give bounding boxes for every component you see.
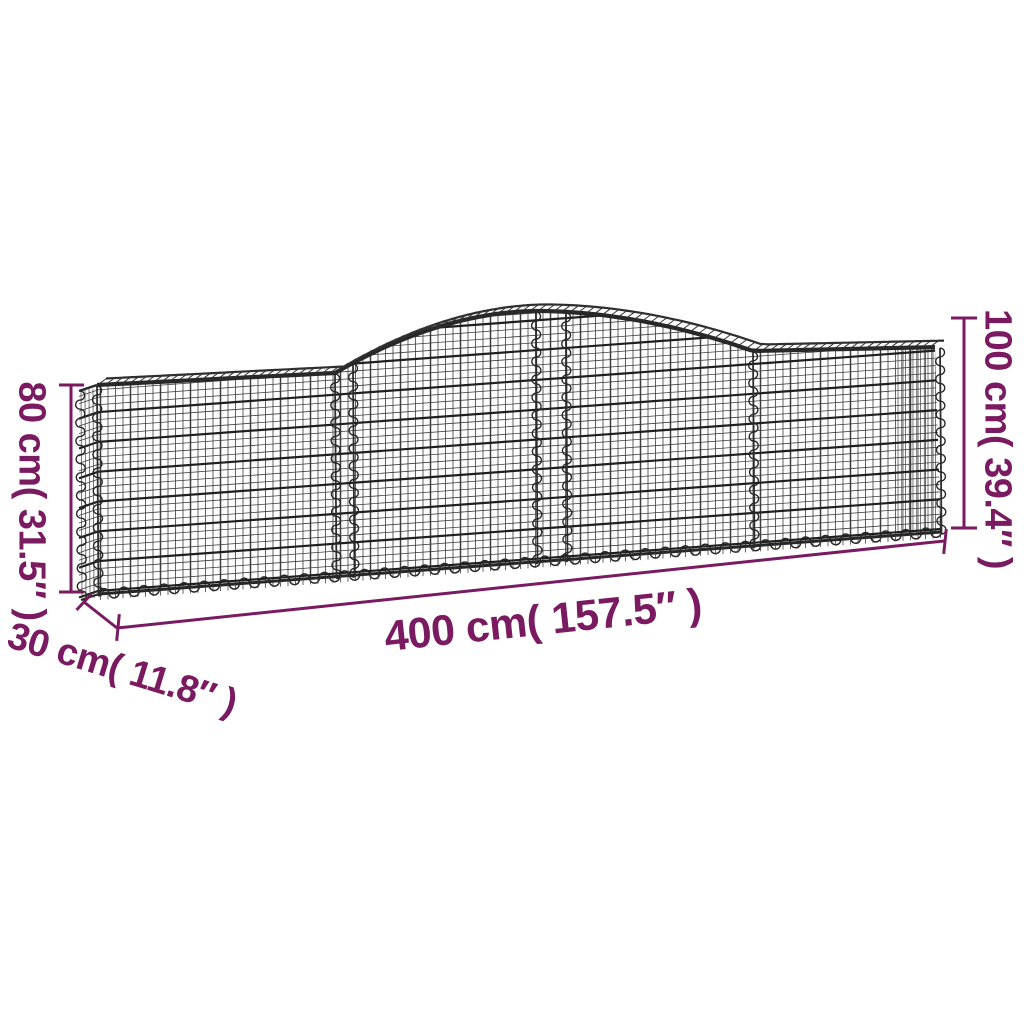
gabion-basket-illustration [0, 0, 1024, 1024]
height-left-dimension-label: 80 cm( 31.5″ ) [10, 381, 53, 620]
height-right-dimension-label: 100 cm( 39.4″ ) [976, 309, 1019, 569]
basket-front-mesh [97, 238, 941, 604]
product-dimension-diagram: 80 cm( 31.5″ ) 100 cm( 39.4″ ) 400 cm( 1… [0, 0, 1024, 1024]
height-right-dimension-line [951, 318, 977, 528]
